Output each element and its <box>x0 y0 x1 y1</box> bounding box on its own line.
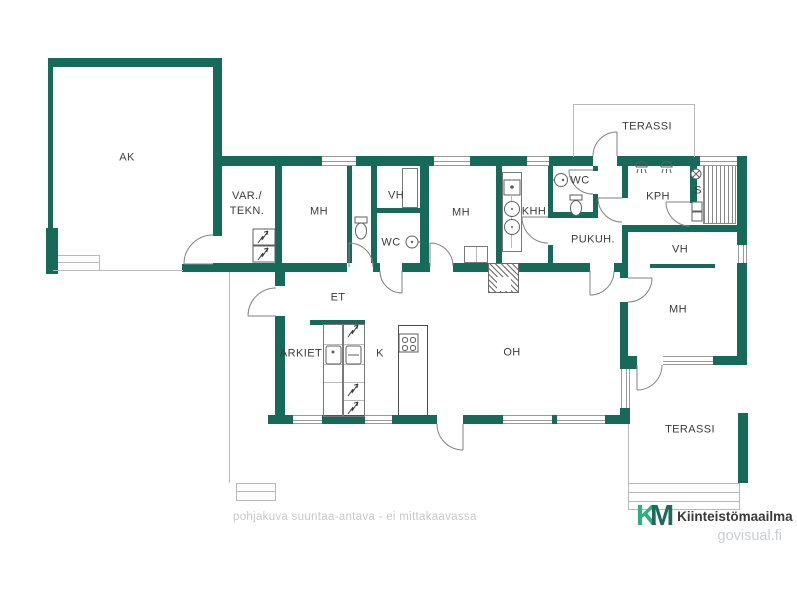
khh-counter <box>502 172 522 252</box>
wall-segment <box>549 156 593 166</box>
site-line <box>236 483 237 501</box>
window-marker <box>322 156 356 166</box>
wall-segment <box>622 225 747 232</box>
sink-icon <box>555 174 568 187</box>
site-line <box>58 262 100 263</box>
room-label-kitchen: K <box>376 347 384 362</box>
window-marker <box>557 415 605 424</box>
floor-plan: AK VAR./TEKN. MH VH WC MH KHH WC PUKUH. … <box>0 0 797 590</box>
sink-icon <box>411 241 413 243</box>
sink-icon <box>406 236 421 248</box>
room-label-mh1: MH <box>310 205 328 220</box>
wall-segment <box>275 316 285 415</box>
room-label-ak: AK <box>119 151 134 166</box>
wall-segment <box>213 58 222 236</box>
brand-website: govisual.fi <box>630 528 782 544</box>
toilet-icon <box>356 223 367 239</box>
wall-segment <box>470 156 527 166</box>
wall-segment <box>620 357 637 369</box>
window-marker <box>293 415 322 424</box>
sauna-bench-icon <box>692 212 702 221</box>
room-label-var-line2: TEKN. <box>230 205 264 217</box>
room-label-wc1: WC <box>381 236 400 251</box>
electrical-panel <box>253 246 275 262</box>
site-line <box>53 270 183 271</box>
door-arc <box>598 198 622 222</box>
wall-segment <box>371 166 377 263</box>
sink-icon <box>562 179 564 181</box>
wall-segment <box>737 156 747 232</box>
door-arc <box>248 288 276 316</box>
wall-segment <box>617 156 700 166</box>
kitchen-island <box>398 325 428 416</box>
room-label-mh3: MH <box>669 303 687 318</box>
closet-shelf <box>402 168 418 208</box>
site-line <box>628 424 629 483</box>
wall-segment <box>356 156 434 166</box>
wall-segment <box>402 263 430 272</box>
wall-segment <box>620 408 630 424</box>
kitchen-counter <box>323 324 343 417</box>
door-arc <box>349 243 373 267</box>
door-arcs <box>184 132 690 450</box>
room-label-mh2: MH <box>452 206 470 221</box>
wall-segment <box>46 228 58 274</box>
room-label-sauna: S <box>694 184 702 199</box>
toilet-icon <box>355 217 367 223</box>
wall-segment <box>48 58 53 230</box>
room-label-vh2: VH <box>672 243 688 258</box>
lightning-icon <box>258 248 268 260</box>
wall-segment <box>213 156 322 166</box>
wall-segment <box>738 413 748 483</box>
wall-segment <box>593 194 598 213</box>
door-arc <box>628 278 652 302</box>
window-marker <box>700 156 737 166</box>
room-label-terassi-bottom: TERASSI <box>665 423 715 438</box>
site-line <box>628 483 629 510</box>
wall-segment <box>713 356 747 365</box>
site-line <box>628 492 740 493</box>
room-label-pukuh: PUKUH. <box>571 233 615 248</box>
wall-segment <box>347 166 352 263</box>
window-marker <box>365 415 392 424</box>
room-label-vh1: VH <box>388 189 404 204</box>
wall-segment <box>548 245 553 272</box>
room-label-et: ET <box>331 291 346 306</box>
site-line <box>58 255 100 256</box>
window-marker <box>738 245 747 263</box>
site-line <box>275 483 276 501</box>
window-marker <box>527 156 549 166</box>
wall-segment <box>213 263 347 272</box>
wall-segment <box>548 212 598 218</box>
wardrobe <box>464 246 488 263</box>
door-arc <box>184 235 213 264</box>
wall-segment <box>392 415 437 424</box>
window-marker <box>434 156 470 166</box>
wall-segment <box>275 166 282 263</box>
room-label-arkiet: ARKIET <box>280 347 322 362</box>
site-line <box>229 272 230 483</box>
fireplace-opening <box>497 277 511 291</box>
wall-segment <box>48 58 222 67</box>
door-arc <box>590 271 614 295</box>
door-arc <box>430 243 453 267</box>
site-line <box>236 491 276 492</box>
wall-segment <box>737 232 747 245</box>
door-arc <box>380 271 402 293</box>
room-label-var-tekn: VAR./TEKN. <box>230 189 264 219</box>
room-label-khh: KHH <box>522 205 546 220</box>
wall-segment <box>622 225 628 272</box>
electrical-panel <box>253 229 275 245</box>
wall-segment <box>453 263 488 272</box>
logo-m-glyph: M <box>650 502 674 531</box>
window-marker <box>503 415 552 424</box>
brand-logo: K M Kiinteistömaailma <box>636 502 793 531</box>
site-line <box>236 500 276 501</box>
room-label-wc2: WC <box>570 174 589 189</box>
wall-segment <box>373 263 380 272</box>
wall-segment <box>371 208 425 213</box>
sauna-bench-slats <box>703 158 736 224</box>
window-marker <box>621 369 630 408</box>
sink-icon <box>406 236 418 248</box>
wall-segment <box>593 166 598 171</box>
wall-segment <box>275 272 285 286</box>
wall-segment <box>548 166 553 217</box>
wall-segment <box>268 415 293 424</box>
kitchen-counter <box>343 324 365 417</box>
room-label-terassi-top: TERASSI <box>622 120 672 135</box>
wall-segment <box>463 415 503 424</box>
electrical-panel <box>253 246 275 262</box>
wall-segment <box>737 263 747 356</box>
plan-disclaimer: pohjakuva suuntaa-antava - ei mittakaava… <box>233 511 477 523</box>
site-line <box>99 255 100 270</box>
lightning-icon <box>258 231 268 243</box>
room-label-kph: KPH <box>646 190 670 205</box>
site-line <box>236 483 276 484</box>
brand-company-name: Kiinteistömaailma <box>677 509 793 524</box>
fixtures <box>253 162 702 414</box>
room-label-var-line1: VAR./ <box>232 190 262 202</box>
sauna-bench-icon <box>692 202 702 211</box>
door-arc <box>437 424 463 450</box>
toilet-icon <box>570 195 582 200</box>
window-marker <box>663 356 713 365</box>
toilet-icon <box>355 217 367 239</box>
door-arc <box>637 365 662 390</box>
door-arc <box>666 202 690 226</box>
door-arc <box>522 217 548 243</box>
wall-segment <box>518 263 590 272</box>
wall-segment <box>420 166 429 263</box>
sink-icon <box>552 174 568 187</box>
wall-segment <box>622 166 628 198</box>
sauna-bench-icon <box>692 202 702 221</box>
wall-segment <box>650 264 715 268</box>
site-line <box>628 483 740 484</box>
wall-segment <box>620 302 628 357</box>
electrical-panel <box>253 229 275 245</box>
room-label-oh: OH <box>503 346 520 361</box>
